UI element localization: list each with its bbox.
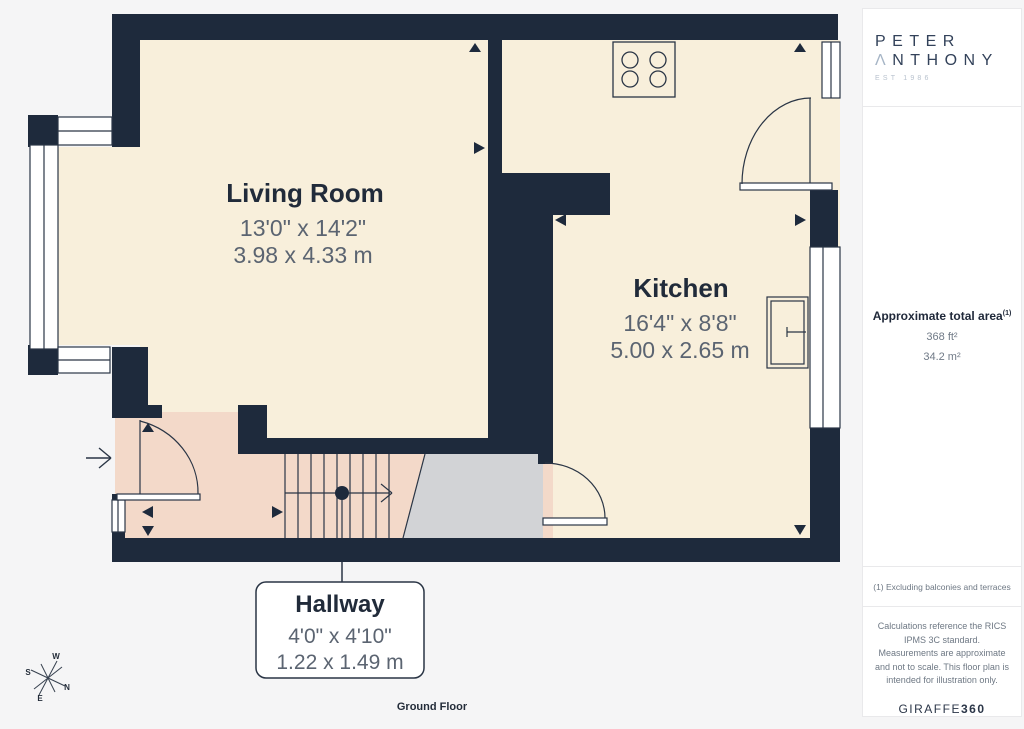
area-summary: Approximate total area(1) 368 ft² 34.2 m…: [863, 107, 1021, 566]
floorplan: Living Room 13'0" x 14'2" 3.98 x 4.33 m …: [0, 0, 860, 724]
legal-block: Calculations reference the RICS IPMS 3C …: [863, 607, 1021, 716]
sink-icon: [767, 297, 808, 368]
compass-icon: W S N E: [25, 652, 70, 703]
giraffe360-brand: GIRAFFE360: [898, 702, 985, 716]
hallway-dims-m: 1.22 x 1.49 m: [276, 651, 403, 674]
kitchen-dims-m: 5.00 x 2.65 m: [610, 337, 749, 363]
area-footnote: (1) Excluding balconies and terraces: [863, 566, 1021, 608]
compass-n: N: [64, 683, 70, 692]
logo-est: EST 1986: [875, 75, 1021, 82]
kitchen-dims-ft: 16'4" x 8'8": [623, 310, 736, 336]
logo-line2-rest: NTHONY: [892, 52, 999, 69]
kitchen-name: Kitchen: [633, 273, 728, 303]
living-room-dims-ft: 13'0" x 14'2": [240, 215, 366, 241]
window-left-long: [30, 145, 58, 349]
compass-e: E: [37, 694, 43, 703]
floor-title: Ground Floor: [397, 701, 468, 713]
logo-line2: ΛNTHONY: [875, 52, 1021, 71]
window-top-left: [58, 117, 112, 145]
compass-s: S: [25, 668, 31, 677]
window-bottom-left: [58, 347, 110, 373]
stairs-landing-floor: [403, 454, 543, 538]
logo-lambda: Λ: [875, 52, 892, 69]
stairs-newel-dot: [335, 486, 349, 500]
sidebar: PETER ΛNTHONY EST 1986 Approximate total…: [862, 8, 1022, 717]
area-heading-text: Approximate total area: [873, 309, 1003, 323]
hallway-callout: Hallway 4'0" x 4'10" 1.22 x 1.49 m: [256, 562, 424, 678]
agency-logo: PETER ΛNTHONY EST 1986: [863, 9, 1021, 107]
floorplan-svg: Living Room 13'0" x 14'2" 3.98 x 4.33 m …: [0, 0, 860, 724]
entrance-arrow-icon: [86, 448, 111, 468]
area-heading: Approximate total area(1): [873, 309, 1012, 323]
window-right-lower: [810, 247, 840, 428]
window-hallway-left: [112, 500, 125, 532]
logo-line1: PETER: [875, 33, 1021, 52]
area-footnote-text: (1) Excluding balconies and terraces: [873, 582, 1011, 592]
living-room-dims-m: 3.98 x 4.33 m: [233, 242, 372, 268]
hallway-name: Hallway: [295, 591, 385, 618]
living-room-label: Living Room 13'0" x 14'2" 3.98 x 4.33 m: [226, 178, 383, 268]
area-heading-superscript: (1): [1003, 310, 1012, 317]
disclaimer-text: Calculations reference the RICS IPMS 3C …: [874, 620, 1010, 688]
brand-suffix: 360: [961, 702, 986, 716]
area-metric: 34.2 m²: [923, 351, 960, 363]
living-room-name: Living Room: [226, 178, 383, 208]
area-imperial: 368 ft²: [926, 331, 957, 343]
brand-name: GIRAFFE: [898, 702, 961, 716]
compass-w: W: [52, 652, 60, 661]
hallway-dims-ft: 4'0" x 4'10": [288, 625, 392, 648]
window-right-top: [822, 42, 840, 98]
